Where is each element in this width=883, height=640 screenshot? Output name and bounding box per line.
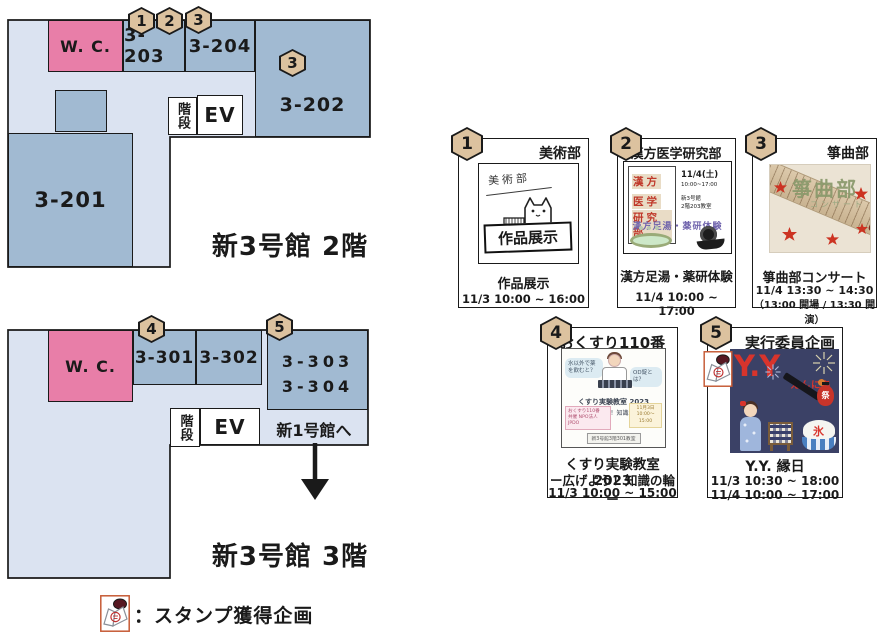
shaved-ice-illustration: 氷 bbox=[802, 420, 836, 450]
pharmacist-body bbox=[602, 367, 627, 381]
card2-poster-line1: 漢方 bbox=[632, 174, 661, 189]
floor2-room-wc-label: W. C. bbox=[60, 37, 111, 56]
card5-time1: 11/3 10:30 ~ 18:00 bbox=[708, 474, 842, 488]
floor2-elevator-label: EV bbox=[204, 103, 235, 127]
maple-leaf-icon bbox=[774, 181, 787, 194]
bottle-table-illustration bbox=[598, 380, 632, 388]
floor2-elevator: EV bbox=[197, 95, 243, 135]
yukata-girl-body bbox=[740, 417, 761, 451]
floor2-room-202: 3-202 bbox=[255, 20, 370, 137]
floor3-elevator: EV bbox=[200, 408, 260, 445]
maple-leaf-icon bbox=[854, 187, 868, 201]
floor3-room-302-label: 3-302 bbox=[199, 348, 258, 368]
floor2-room-202-label: 3-202 bbox=[280, 94, 346, 116]
floor2-title: 新3号館 2階 bbox=[185, 226, 395, 263]
maple-leaf-icon bbox=[856, 223, 868, 235]
card1-poster-sign: 作品展示 bbox=[484, 221, 573, 253]
floor3-room-304-label: 3-304 bbox=[282, 377, 353, 396]
floor3-room-303-304: 3-303 3-304 bbox=[267, 330, 368, 410]
card1-poster: 美術部 作品展示 bbox=[478, 163, 579, 264]
yukata-girl-head bbox=[744, 404, 757, 417]
card2-badge: 2 bbox=[610, 127, 642, 161]
card2-caption: 漢方足湯・薬研体験 bbox=[618, 266, 735, 285]
maple-leaf-icon bbox=[782, 227, 797, 242]
event-card-1: 1 美術部 美術部 作品展示 作品展示 11/3 10:00 ~ 16:00 bbox=[458, 138, 589, 308]
card3-time-detail: （13:00 開場 / 13:30 開演） bbox=[753, 296, 876, 326]
floor2-badge-3: 3 bbox=[185, 6, 212, 34]
pharmacist-head bbox=[608, 354, 621, 367]
floor2-room-204-label: 3-204 bbox=[189, 36, 252, 57]
target-board-illustration bbox=[768, 422, 793, 445]
event-card-3: 3 箏曲部 箏曲部 コンサート 箏曲部コンサート 11/4 13:30 ~ 14… bbox=[752, 138, 877, 308]
floor3-room-302: 3-302 bbox=[196, 330, 262, 385]
card2-poster-place1: 新3号館 bbox=[681, 194, 701, 202]
floor3-stairs-label: 階段 bbox=[176, 414, 195, 442]
card4-poster: 水以外で薬を飲むと？ OD錠とは？ くすり実験教室 2023 ー広げよう！知識の… bbox=[561, 348, 666, 448]
card4-poster-date-note: 11月3日 10:00～15:00 bbox=[629, 403, 662, 428]
floor3-room-303-label: 3-303 bbox=[282, 352, 353, 371]
floor3-exit-label: 新1号館へ bbox=[262, 417, 366, 441]
floor3-badge-4: 4 bbox=[138, 315, 165, 343]
card3-badge: 3 bbox=[745, 127, 777, 161]
card2-poster-place2: 2階203教室 bbox=[681, 202, 712, 210]
exit-arrow-head bbox=[301, 479, 329, 500]
card1-time: 11/3 10:00 ~ 16:00 bbox=[459, 292, 588, 306]
legend-label: ：スタンプ獲得企画 bbox=[134, 601, 313, 628]
yagen-boat-illustration bbox=[697, 239, 726, 251]
floor3-room-wc: W. C. bbox=[48, 330, 133, 402]
event-card-4: 4 おくすり110番 水以外で薬を飲むと？ OD錠とは？ くすり実験教室 202… bbox=[547, 327, 678, 498]
card2-poster: 漢方 医学 研究部 11/4(土) 10:00~17:00 新3号館 2階203… bbox=[623, 161, 732, 254]
target-board-legs bbox=[770, 445, 790, 451]
card5-badge: 5 bbox=[700, 316, 732, 350]
footbath-steam bbox=[638, 226, 660, 231]
card2-poster-time: 10:00~17:00 bbox=[681, 182, 717, 188]
card3-poster: 箏曲部 コンサート bbox=[769, 164, 871, 253]
card2-poster-line2: 医学 bbox=[632, 194, 661, 209]
floor2-badge-2: 2 bbox=[156, 7, 183, 35]
card2-time: 11/4 10:00 ~ 17:00 bbox=[618, 290, 735, 318]
floor2-stairs: 階段 bbox=[168, 97, 197, 135]
festival-map-page: W. C. 3-203 3-204 3-202 3-201 階段 EV 1 2 … bbox=[0, 0, 883, 640]
shaved-ice-character: 氷 bbox=[813, 423, 824, 439]
floor2-room-201: 3-201 bbox=[8, 133, 133, 267]
floor2-stairs-label: 階段 bbox=[173, 102, 192, 130]
card5-caption: Y.Y. 縁日 bbox=[708, 456, 842, 476]
floor2-badge-1: 1 bbox=[128, 7, 155, 35]
stamp-icon bbox=[702, 351, 734, 387]
card5-time2: 11/4 10:00 ~ 17:00 bbox=[708, 488, 842, 502]
card5-poster: Y.Y えんにち 祭 bbox=[730, 349, 839, 453]
floor2-badge-3-room202: 3 bbox=[279, 49, 306, 77]
card4-poster-organizer-note: おくすり110番 共催 NPO法人JPDO bbox=[565, 406, 611, 430]
floor3-elevator-label: EV bbox=[214, 415, 245, 439]
fireworks-icon bbox=[764, 363, 782, 381]
floorplan-shapes bbox=[0, 0, 883, 640]
koto-end bbox=[868, 209, 871, 234]
footbath-illustration bbox=[630, 233, 672, 248]
card2-poster-date: 11/4(土) bbox=[681, 168, 718, 180]
card4-time: 11/3 10:00 ~ 15:00 bbox=[548, 486, 677, 500]
floor3-badge-5: 5 bbox=[266, 313, 293, 341]
maple-leaf-icon bbox=[826, 233, 839, 246]
card4-poster-room-note: 新3号館3階301教室 bbox=[586, 433, 640, 444]
floor2-small-room bbox=[55, 90, 107, 132]
floor3-room-301-label: 3-301 bbox=[135, 348, 194, 368]
card1-badge: 1 bbox=[451, 127, 483, 161]
floor2-room-201-label: 3-201 bbox=[34, 188, 106, 212]
event-card-2: 2 漢方医学研究部 漢方 医学 研究部 11/4(土) 10:00~17:00 … bbox=[617, 138, 736, 308]
floor3-title: 新3号館 3階 bbox=[185, 536, 395, 573]
floor3-room-wc-label: W. C. bbox=[65, 357, 116, 376]
event-card-5: 5 実行委員企画 Y.Y えんにち bbox=[707, 327, 843, 498]
lantern-character: 祭 bbox=[822, 390, 830, 401]
festival-lantern-icon: 祭 bbox=[817, 385, 834, 406]
stamp-icon bbox=[100, 595, 130, 632]
card4-poster-bubble1: 水以外で薬を飲むと？ bbox=[565, 358, 603, 378]
fireworks-icon bbox=[811, 350, 837, 376]
card1-poster-handwritten: 美術部 bbox=[487, 170, 530, 189]
floor3-stairs: 階段 bbox=[170, 408, 200, 447]
card4-badge: 4 bbox=[540, 316, 572, 350]
card4-poster-bubble2: OD錠とは？ bbox=[630, 367, 662, 387]
card1-caption: 作品展示 bbox=[459, 273, 588, 292]
floor2-room-wc: W. C. bbox=[48, 20, 123, 72]
card3-poster-title: 箏曲部 bbox=[792, 173, 858, 202]
